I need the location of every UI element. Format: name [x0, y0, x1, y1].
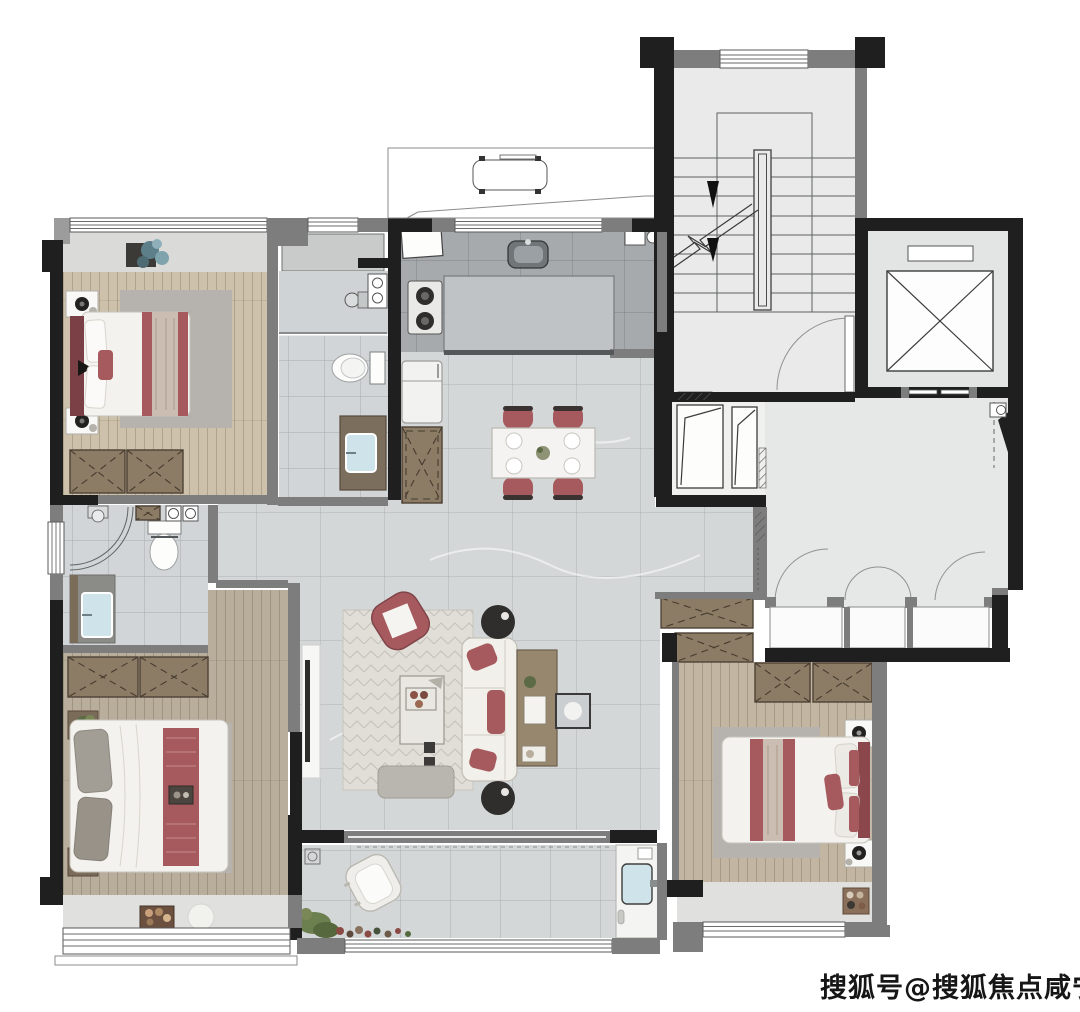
- kitchen-sink-icon: [508, 239, 548, 268]
- headboard: [858, 742, 870, 838]
- kitchen-floor-inset: [444, 276, 614, 352]
- tv-wall: [302, 645, 320, 778]
- stove-icon: [408, 281, 442, 334]
- bed-runner: [142, 312, 152, 416]
- bathroom-ensuite: [63, 505, 208, 645]
- tv-icon: [305, 660, 310, 762]
- bed: [722, 737, 870, 843]
- bathroom-top: [279, 234, 388, 498]
- floor-plan-image: 搜狐号@搜狐焦点咸宁站: [0, 0, 1080, 1012]
- dining-table: [492, 428, 595, 478]
- window: [308, 218, 358, 232]
- utility-platform: [672, 392, 766, 495]
- elevator-car: [887, 271, 993, 371]
- window: [55, 928, 297, 965]
- sill-plate-icon: [188, 904, 214, 930]
- hall-closets: [770, 607, 989, 648]
- window-panel-icon: [677, 405, 757, 488]
- kitchen-counter-edge: [444, 350, 614, 355]
- bed-runner: [750, 739, 763, 841]
- balcony: [297, 845, 661, 938]
- ottoman-bench: [378, 766, 454, 798]
- window: [70, 218, 267, 232]
- watermark-text: 搜狐号@搜狐焦点咸宁站: [820, 972, 1080, 1004]
- nightstand: [845, 840, 873, 867]
- bedroom-top-left: [63, 232, 267, 495]
- round-side-pouf: [481, 781, 515, 815]
- wardrobe: [68, 657, 208, 697]
- pantry-cabinet: [402, 427, 442, 503]
- bay-window-sill: [63, 895, 290, 928]
- storage-box: [136, 506, 160, 520]
- stair-handrail: [754, 150, 771, 310]
- console-table: [517, 650, 557, 766]
- fridge-icon: [402, 361, 442, 423]
- elevator: [855, 218, 1023, 400]
- ac-platform: [388, 148, 658, 218]
- shower-head-icon: [345, 292, 368, 308]
- entry-hall: [765, 398, 1011, 648]
- wardrobe: [70, 450, 183, 493]
- entry-wall: [753, 507, 767, 600]
- toilet-icon: [332, 352, 385, 384]
- bed: [70, 720, 228, 872]
- round-side-pouf: [481, 605, 515, 639]
- laundry-sink-unit: [616, 845, 661, 938]
- kitchen: [400, 229, 659, 358]
- vanity-sink: [340, 416, 386, 490]
- side-table: [556, 694, 590, 728]
- range-hood-icon: [401, 229, 443, 259]
- bed-tray: [169, 786, 193, 804]
- window: [455, 218, 602, 232]
- window: [48, 522, 64, 574]
- window: [703, 922, 845, 937]
- sofa: [462, 638, 517, 781]
- bath-niche: [368, 274, 387, 308]
- window: [345, 940, 612, 952]
- bed: [70, 312, 190, 416]
- stairwell: [664, 68, 855, 398]
- vanity-sink: [70, 575, 115, 643]
- window: [720, 50, 808, 68]
- ac-outdoor-unit-icon: [473, 155, 547, 194]
- balcony-slider: [344, 831, 610, 843]
- sill-tray-icon: [140, 906, 174, 928]
- sill-tray-icon: [843, 888, 869, 914]
